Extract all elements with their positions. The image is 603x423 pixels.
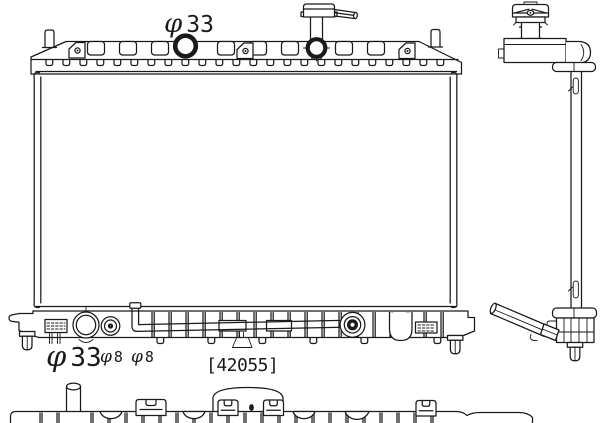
side-view-top-tank <box>499 39 596 72</box>
side-view <box>489 2 597 361</box>
bottom-tank-right-profile <box>450 311 475 336</box>
bottom-view-clip-a <box>136 400 166 416</box>
small-port-fitting <box>101 317 120 336</box>
side-view-core-column <box>569 72 582 309</box>
right-side-plate <box>450 73 457 308</box>
core <box>34 72 457 308</box>
bottom-tank-cup-pocket <box>390 313 413 341</box>
fitting-a-diameter-label: φ8 <box>100 347 123 367</box>
hatched-bracket-right <box>416 322 438 333</box>
filler-neck-ring <box>308 39 326 57</box>
bottom-outlet-diameter-label: φ33 <box>46 339 102 373</box>
top-tank <box>31 30 462 75</box>
front-view <box>9 4 475 354</box>
bottom-view-post <box>67 383 81 411</box>
left-side-plate <box>34 73 41 308</box>
oil-cooler-fitting <box>340 312 365 337</box>
side-view-cap <box>513 2 549 39</box>
drain-plug-left <box>20 332 35 350</box>
diagram-canvas: φ33 φ33 φ8 φ8 [42055] <box>0 0 603 423</box>
side-view-drain-plug <box>567 343 582 361</box>
part-number-label: [42055] <box>206 355 278 376</box>
part-number-callout <box>233 333 253 348</box>
bottom-partial-view <box>11 383 533 423</box>
drain-plug-right <box>448 336 463 354</box>
fitting-b-diameter-label: φ8 <box>131 347 154 367</box>
radiator-technical-drawing: φ33 φ33 φ8 φ8 [42055] <box>0 0 603 423</box>
radiator-cap <box>304 4 335 17</box>
top-inlet-diameter-label: φ33 <box>164 9 214 39</box>
bottom-view-right-end <box>447 412 533 423</box>
